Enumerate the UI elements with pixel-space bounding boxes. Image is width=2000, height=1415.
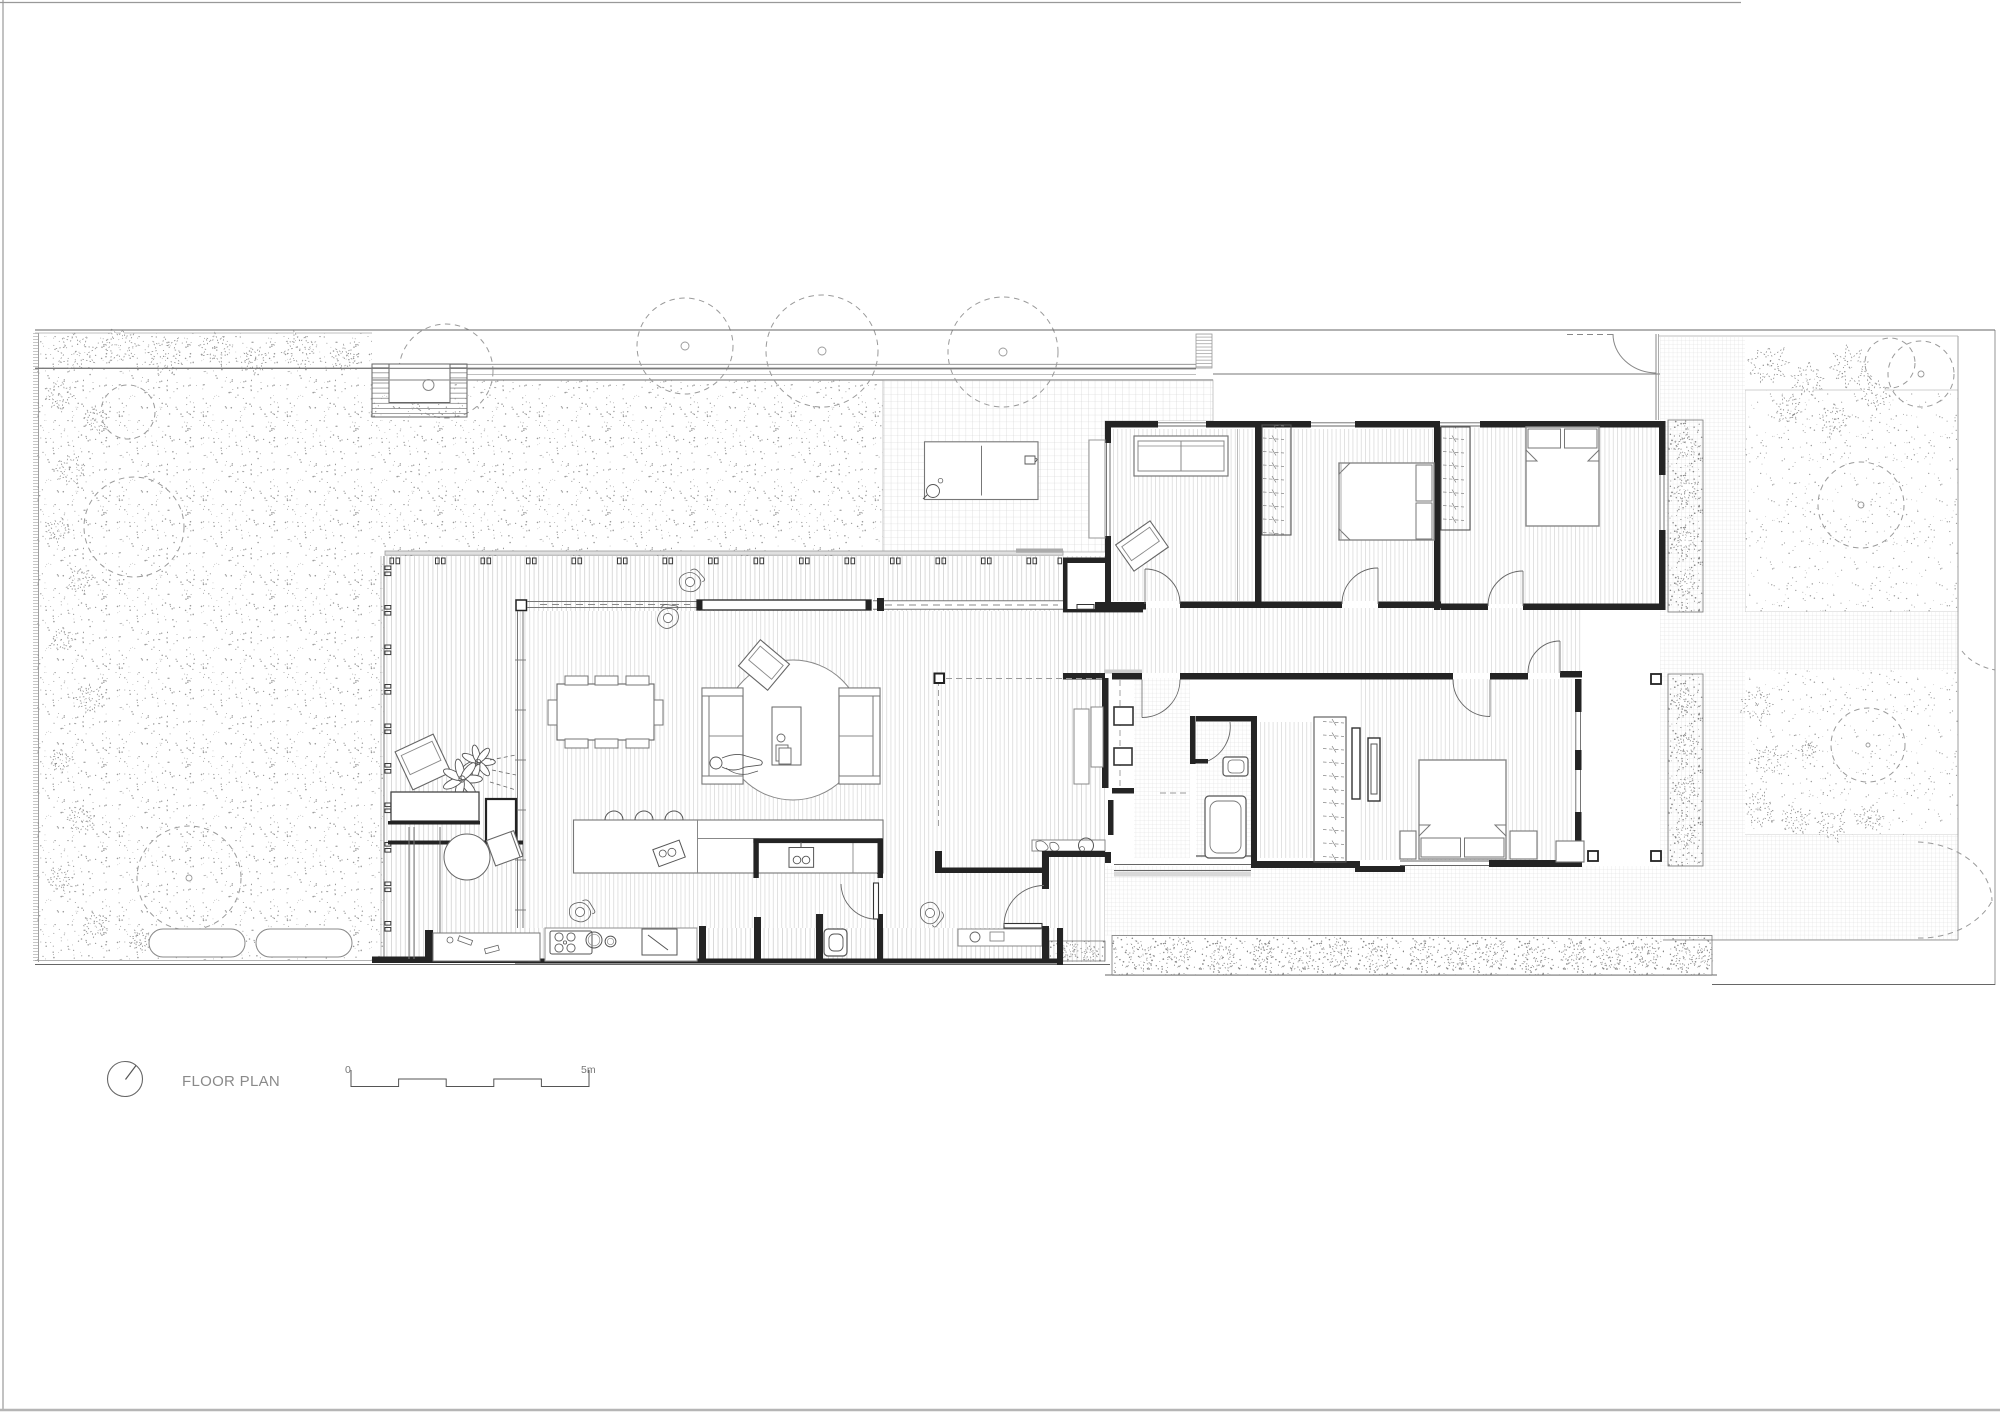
svg-text:5m: 5m (581, 1064, 596, 1076)
svg-text:FLOOR PLAN: FLOOR PLAN (182, 1073, 280, 1090)
svg-text:0: 0 (345, 1064, 351, 1076)
